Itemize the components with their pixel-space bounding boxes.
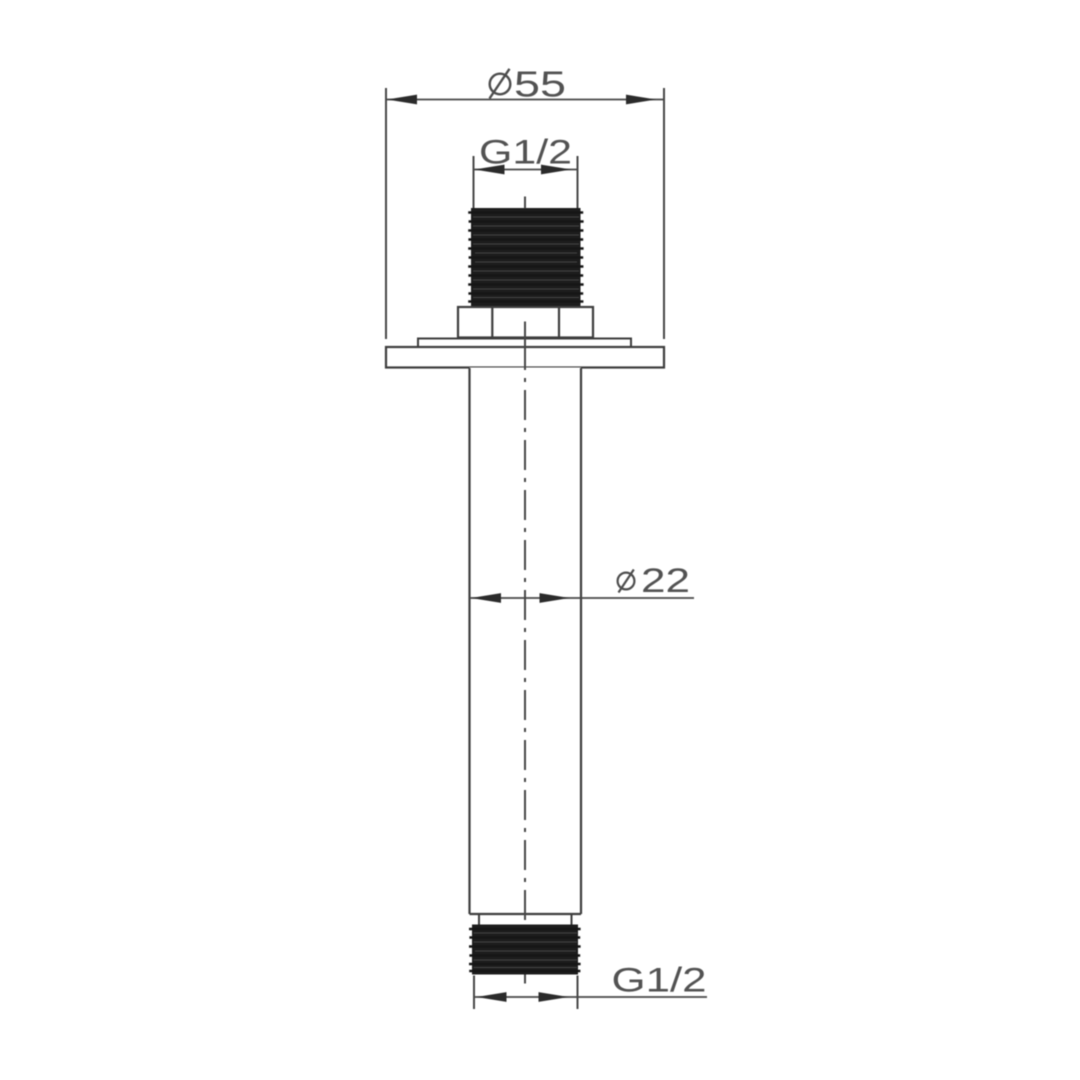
svg-text:55: 55 — [514, 64, 566, 105]
svg-text:G1/2: G1/2 — [612, 962, 707, 1000]
svg-text:G1/2: G1/2 — [479, 134, 572, 172]
svg-text:22: 22 — [641, 562, 690, 600]
